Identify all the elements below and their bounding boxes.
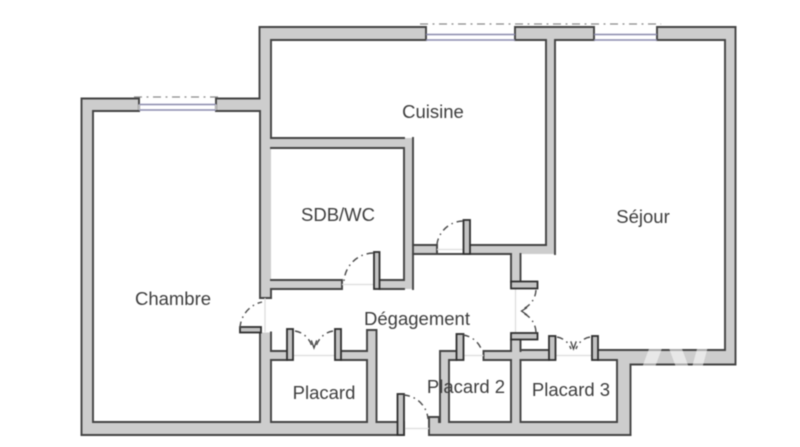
svg-text:Placard 2: Placard 2: [427, 376, 505, 397]
svg-text:Chambre: Chambre: [135, 288, 211, 309]
svg-text:Cuisine: Cuisine: [402, 101, 464, 122]
svg-text:SDB/WC: SDB/WC: [301, 204, 375, 225]
svg-text:Dégagement: Dégagement: [364, 308, 470, 329]
svg-text:Placard: Placard: [293, 382, 356, 403]
svg-text:Placard 3: Placard 3: [532, 379, 610, 400]
svg-text:Séjour: Séjour: [616, 206, 669, 227]
